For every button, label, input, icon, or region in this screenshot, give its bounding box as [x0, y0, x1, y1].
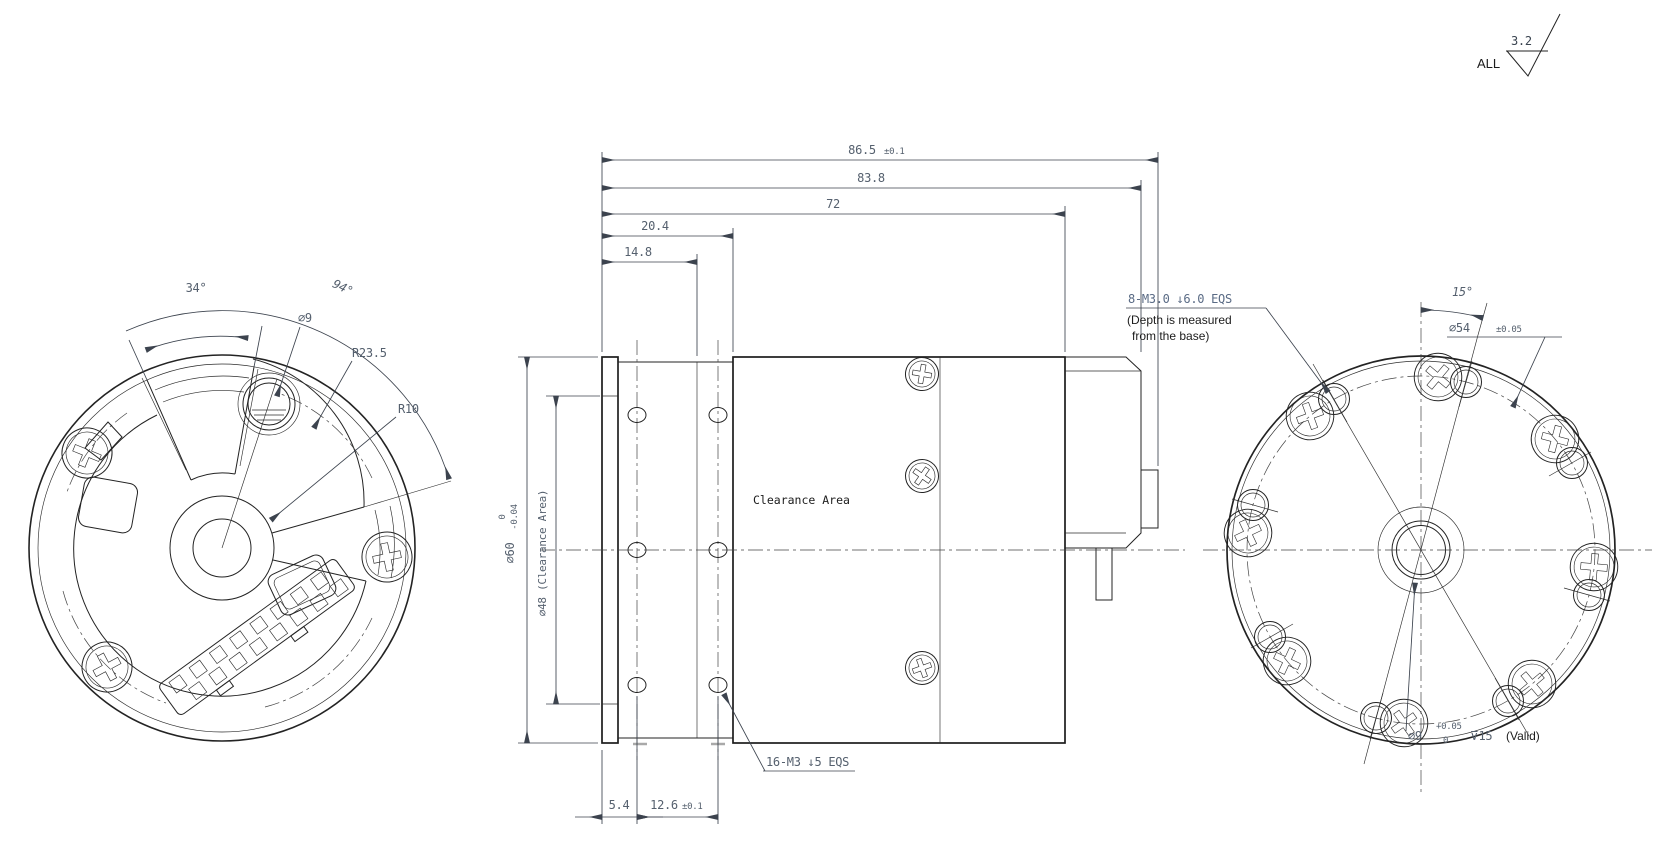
- dim-r10: R10: [398, 402, 419, 416]
- front-screw-2: [73, 633, 141, 701]
- side-rear-housing: [1065, 357, 1158, 600]
- dim-86-5: 86.5: [848, 143, 876, 157]
- surface-scope-label: ALL: [1477, 56, 1500, 71]
- note-8-m3: 8-M3.0 ↓6.0 EQS: [1128, 292, 1232, 306]
- dim-r235: R23.5: [352, 346, 387, 360]
- side-view: Clearance Area 86.5 ±0.1 83.8 72 20.4 14…: [498, 143, 1185, 824]
- dim-12-6: 12.6: [650, 798, 678, 812]
- dim-d60-tol-hi: 0: [498, 514, 508, 519]
- front-square-cutout: [77, 476, 139, 535]
- dim-5-4: 5.4: [609, 798, 630, 812]
- rear-tapped-note: 8-M3.0 ↓6.0 EQS (Depth is measured from …: [1126, 292, 1328, 392]
- front-dimensions: 34° 94° ∅9 R23.5 R10: [126, 277, 449, 520]
- front-small-wedge: [85, 422, 122, 460]
- dim-angle-94: 94°: [330, 277, 355, 299]
- dim-bore-tol-hi: +0.05: [1436, 722, 1462, 732]
- dim-hole-d9: ∅9: [298, 311, 312, 325]
- dim-bore-tol-lo: 0: [1443, 736, 1448, 746]
- dim-d54-tol: ±0.05: [1496, 325, 1522, 335]
- dim-15deg: 15°: [1452, 285, 1473, 299]
- rear-bore-note: ∅9 +0.05 0 ⊽15 (Valid): [1406, 583, 1540, 746]
- dim-20-4: 20.4: [641, 219, 669, 233]
- dim-bore-valid: (Valid): [1506, 729, 1540, 743]
- side-rear-tab: [1096, 548, 1112, 600]
- dim-d60-tol-lo: -0.04: [510, 504, 520, 530]
- connector-pins: [169, 565, 348, 707]
- dim-86-5-tol: ±0.1: [884, 147, 904, 157]
- dim-bore-d9: ∅9: [1408, 729, 1422, 743]
- side-dimensions-bottom: 5.4 12.6 ±0.1: [575, 696, 718, 824]
- dim-angle-34: 34°: [186, 281, 207, 295]
- side-dimensions-top: 86.5 ±0.1 83.8 72 20.4 14.8: [602, 143, 1158, 466]
- dim-72: 72: [826, 197, 840, 211]
- surface-roughness-value: 3.2: [1511, 34, 1532, 48]
- side-rear-connector: [1141, 470, 1158, 528]
- dim-d60: ∅60: [503, 543, 517, 564]
- dim-d54: ∅54: [1449, 321, 1470, 335]
- side-screw-1: [903, 355, 941, 393]
- side-screw-3: [901, 647, 943, 689]
- dim-12-6-tol: ±0.1: [682, 802, 702, 812]
- rear-dim-angle: 15°: [1421, 285, 1483, 318]
- rear-view: 15° ∅54 ±0.05 8-M3.0 ↓6.0 EQS (Depth is …: [1126, 285, 1652, 795]
- dim-d48: ∅48 (Clearance Area): [536, 490, 549, 616]
- note-depth-line2: from the base): [1132, 329, 1209, 343]
- drawing-sheet: 3.2 ALL: [0, 0, 1680, 856]
- surface-finish-symbol: 3.2 ALL: [1477, 14, 1560, 76]
- front-view: 34° 94° ∅9 R23.5 R10: [29, 277, 451, 741]
- front-connector-block: [158, 558, 361, 723]
- note-depth-line1: (Depth is measured: [1127, 313, 1232, 327]
- front-right-wedge-cut: [272, 481, 451, 581]
- note-16-m3: 16-M3 ↓5 EQS: [766, 755, 849, 769]
- side-screw-2: [899, 453, 945, 499]
- dim-83-8: 83.8: [857, 171, 885, 185]
- front-top-sector-cut: [142, 367, 258, 480]
- clearance-area-label: Clearance Area: [753, 493, 850, 507]
- dim-bore-depth: ⊽15: [1470, 729, 1492, 743]
- front-screw-3: [357, 527, 416, 586]
- dim-14-8: 14.8: [624, 245, 652, 259]
- side-tapped-note: 16-M3 ↓5 EQS: [724, 694, 855, 771]
